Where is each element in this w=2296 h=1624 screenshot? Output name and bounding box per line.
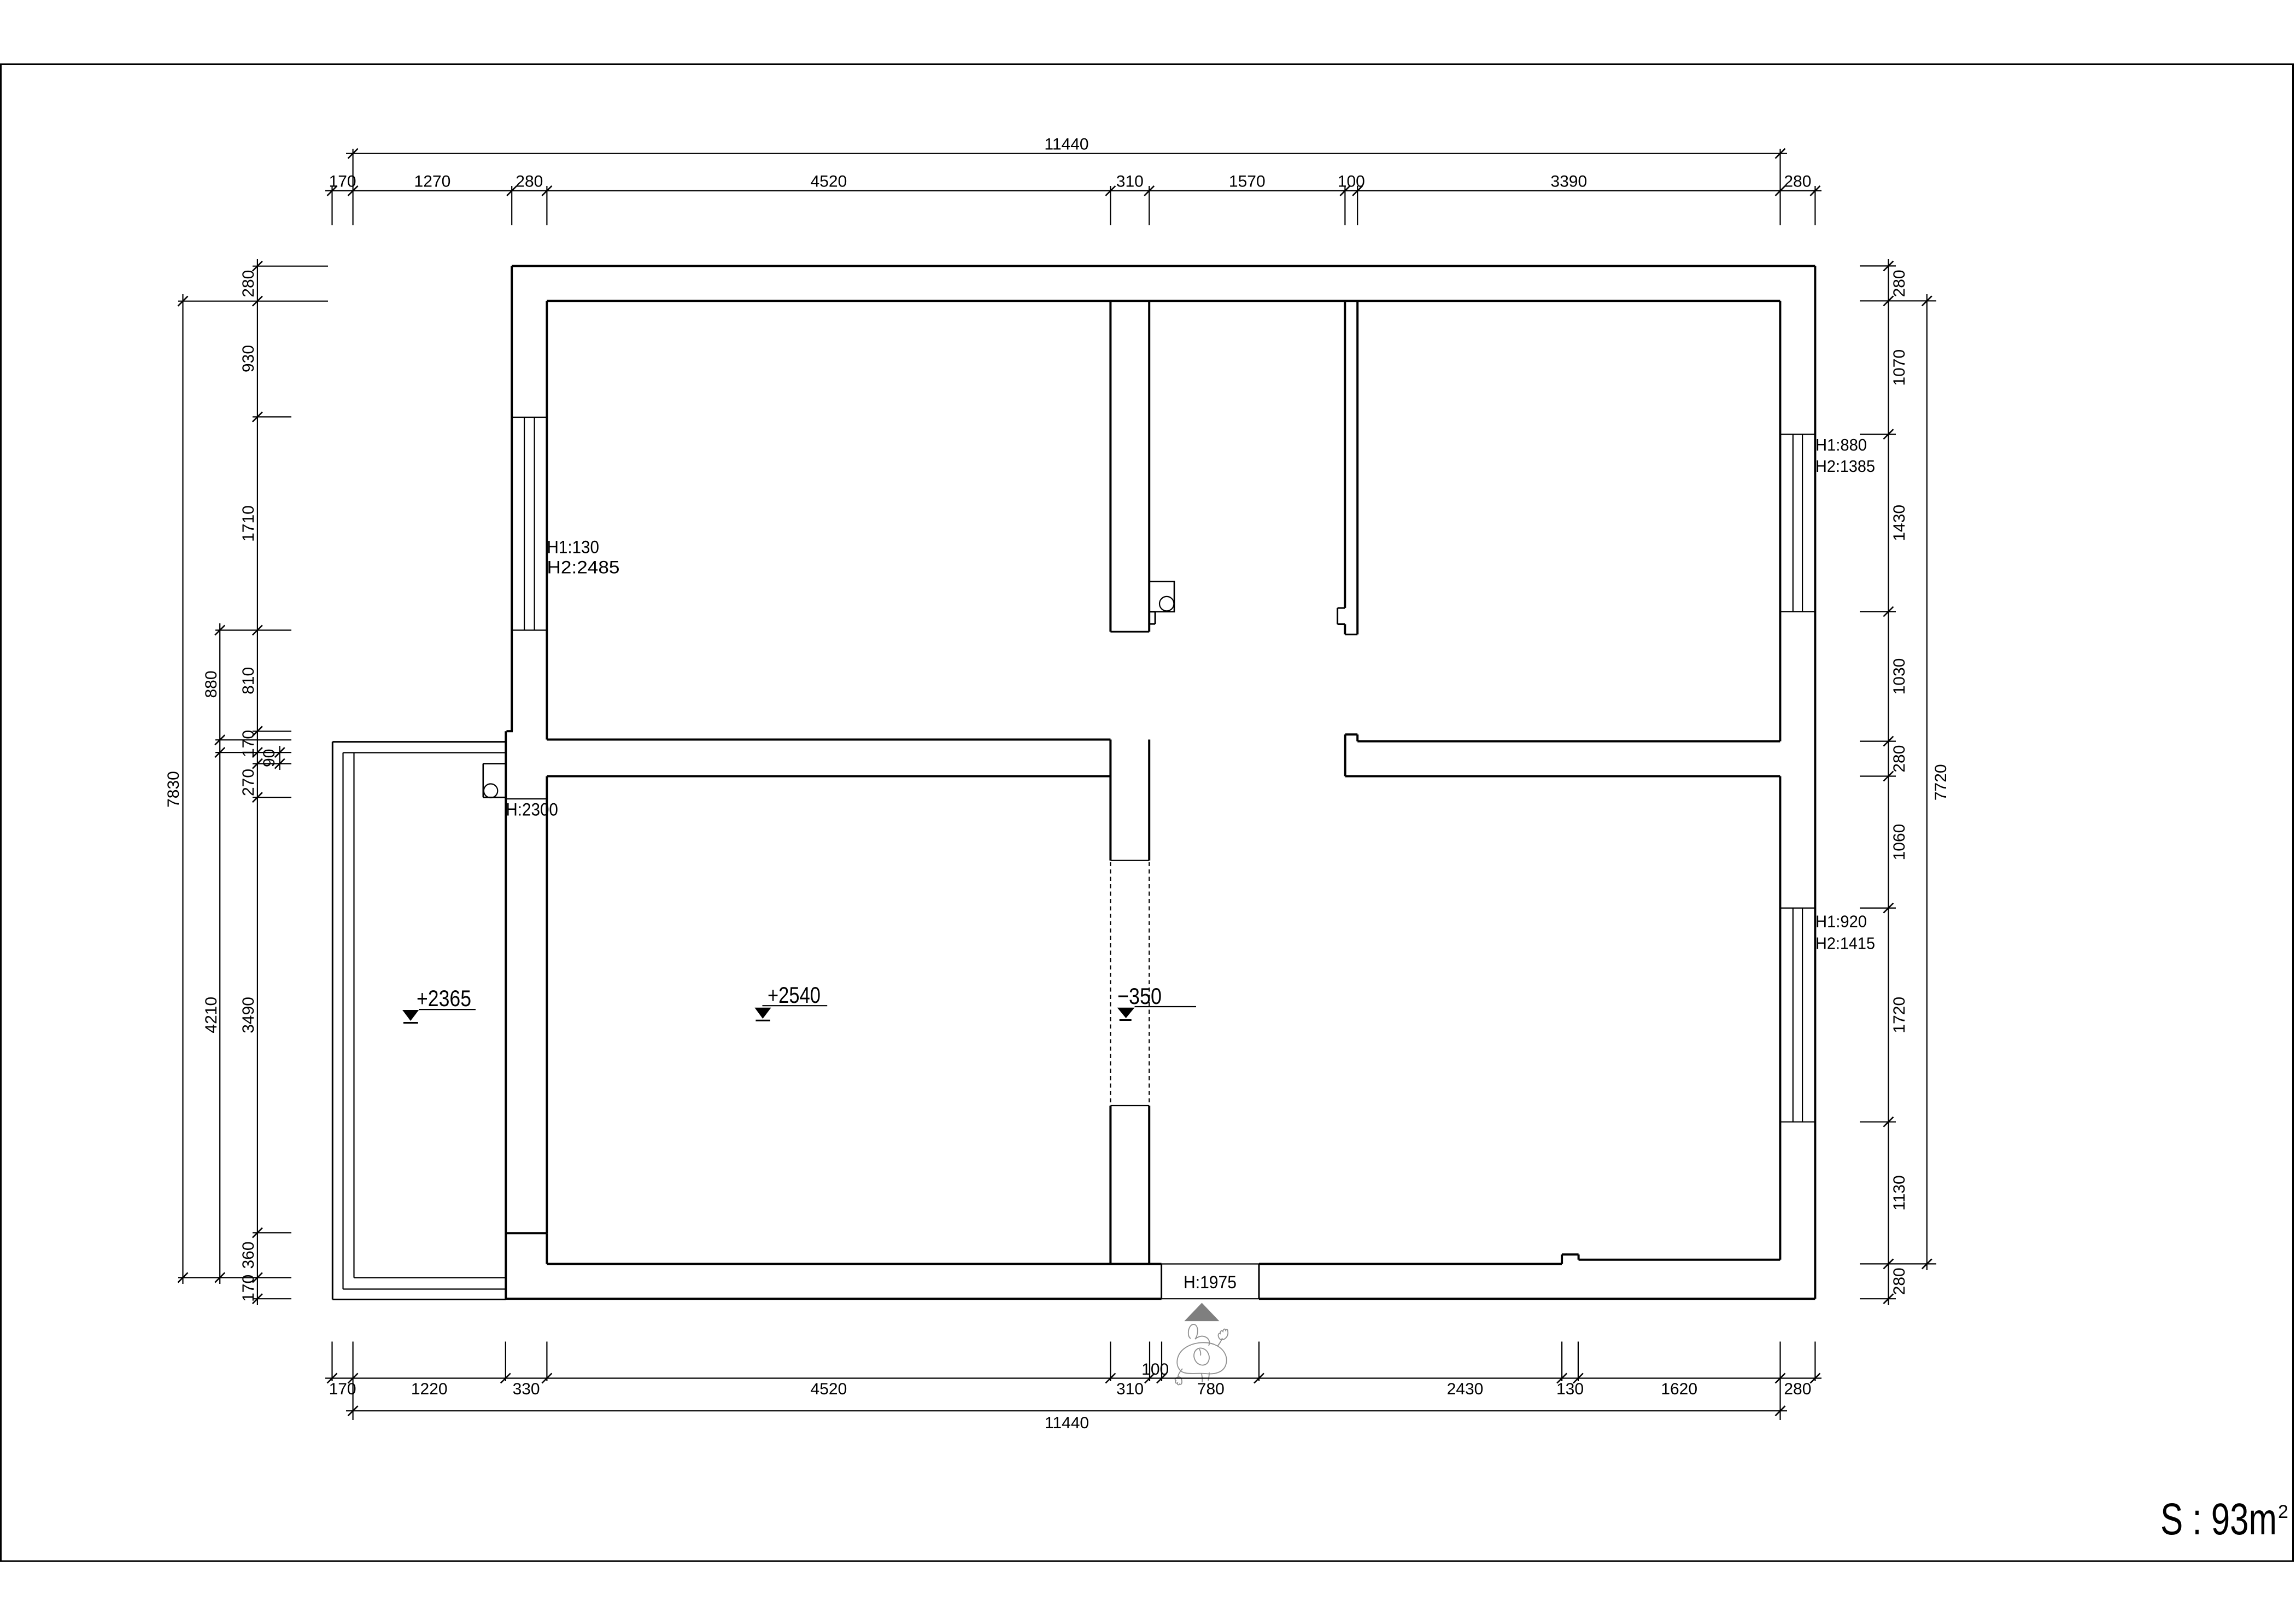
svg-text:S : 93m: S : 93m (2160, 1494, 2277, 1544)
svg-text:330: 330 (513, 1380, 540, 1398)
svg-text:280: 280 (1784, 1380, 1811, 1398)
svg-text:360: 360 (239, 1241, 257, 1269)
svg-text:1070: 1070 (1890, 349, 1908, 386)
svg-text:1130: 1130 (1890, 1175, 1908, 1211)
svg-text:H2:1385: H2:1385 (1815, 457, 1875, 476)
svg-text:90: 90 (260, 749, 278, 767)
svg-text:170: 170 (329, 1380, 356, 1398)
svg-text:4520: 4520 (811, 173, 847, 191)
svg-text:170: 170 (329, 173, 356, 191)
svg-text:170: 170 (239, 1275, 257, 1302)
svg-text:930: 930 (239, 345, 257, 372)
svg-text:280: 280 (1784, 173, 1811, 191)
svg-text:310: 310 (1116, 173, 1144, 191)
svg-text:7720: 7720 (1932, 764, 1950, 801)
svg-text:280: 280 (239, 270, 257, 297)
svg-text:4210: 4210 (202, 997, 220, 1033)
svg-text:170: 170 (239, 730, 257, 757)
svg-text:810: 810 (239, 667, 257, 694)
svg-text:1060: 1060 (1890, 824, 1908, 861)
svg-text:2430: 2430 (1447, 1380, 1484, 1398)
svg-text:H2:1415: H2:1415 (1815, 934, 1875, 953)
svg-text:H2:2485: H2:2485 (547, 558, 620, 577)
svg-text:280: 280 (516, 173, 543, 191)
svg-text:4520: 4520 (811, 1380, 847, 1398)
svg-text:280: 280 (1890, 1267, 1908, 1295)
svg-text:130: 130 (1556, 1380, 1584, 1398)
svg-text:1620: 1620 (1661, 1380, 1697, 1398)
svg-text:1720: 1720 (1890, 997, 1908, 1033)
svg-text:+2540: +2540 (768, 982, 821, 1008)
svg-text:2: 2 (2278, 1502, 2288, 1522)
svg-text:1430: 1430 (1890, 505, 1908, 541)
svg-text:1030: 1030 (1890, 658, 1908, 695)
svg-text:11440: 11440 (1044, 136, 1088, 154)
svg-text:280: 280 (1890, 270, 1908, 297)
svg-text:−350: −350 (1117, 983, 1162, 1009)
svg-text:H1:880: H1:880 (1815, 435, 1867, 454)
svg-text:100: 100 (1338, 173, 1365, 191)
svg-text:1270: 1270 (414, 173, 451, 191)
svg-text:11440: 11440 (1045, 1414, 1089, 1432)
svg-text:1570: 1570 (1229, 173, 1266, 191)
svg-text:3390: 3390 (1550, 173, 1587, 191)
svg-text:270: 270 (239, 769, 257, 796)
svg-text:1220: 1220 (411, 1380, 448, 1398)
svg-text:100: 100 (1141, 1360, 1169, 1378)
svg-text:780: 780 (1197, 1380, 1225, 1398)
svg-text:880: 880 (202, 670, 220, 698)
svg-text:280: 280 (1890, 745, 1908, 773)
svg-text:H1:920: H1:920 (1815, 912, 1867, 931)
svg-text:H1:130: H1:130 (547, 538, 600, 557)
svg-text:3490: 3490 (239, 997, 257, 1033)
svg-text:+2365: +2365 (417, 985, 471, 1011)
svg-text:H:2300: H:2300 (506, 800, 558, 820)
svg-text:H:1975: H:1975 (1184, 1272, 1237, 1292)
svg-text:1710: 1710 (239, 505, 257, 542)
svg-text:7830: 7830 (165, 771, 183, 808)
svg-text:310: 310 (1116, 1380, 1144, 1398)
